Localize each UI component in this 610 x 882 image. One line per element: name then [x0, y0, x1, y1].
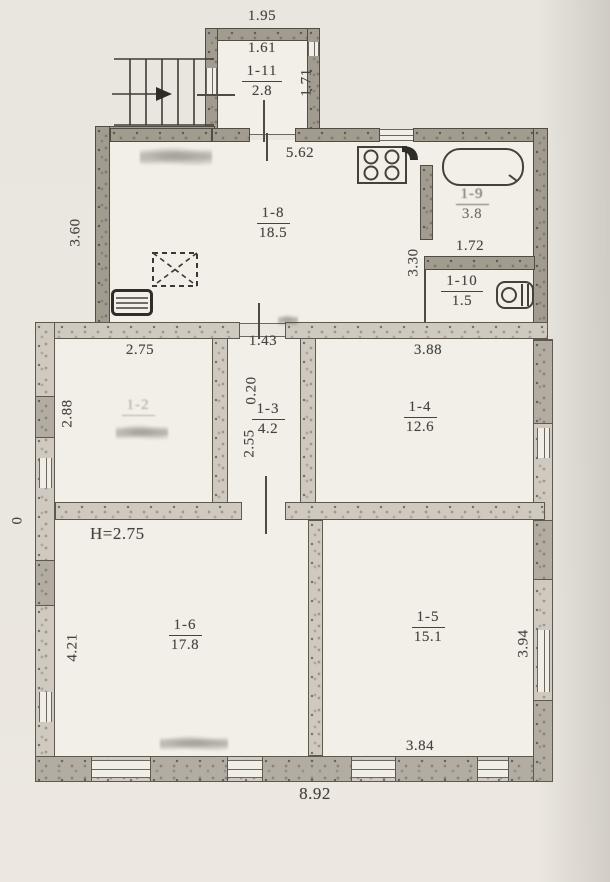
toilet-icon	[496, 280, 534, 310]
wall	[295, 128, 380, 142]
wall	[285, 502, 545, 520]
dim-bath-width: 1.72	[430, 238, 510, 255]
window	[537, 428, 550, 458]
room-area: 18.5	[233, 225, 313, 242]
room-id: 1-9	[456, 186, 489, 205]
room-id: 1-10	[441, 273, 483, 292]
wall	[413, 128, 548, 142]
room-area: 3.8	[442, 206, 502, 223]
dim-left-zero: 0	[10, 511, 27, 531]
wall-pier	[262, 756, 352, 782]
wall-pier	[35, 396, 55, 438]
wall	[35, 322, 240, 339]
floor-plan-page: 1.95 1.61 1.71 5.62 3.60 3.30 1.72 2.75 …	[0, 0, 610, 882]
dim-room14-width: 3.88	[388, 342, 468, 359]
dim-kitchen-width: 5.62	[260, 145, 340, 162]
room-id: 1-11	[242, 63, 283, 82]
window	[537, 630, 550, 692]
floor-hatch-icon	[151, 251, 199, 288]
ink-smudge	[140, 146, 212, 166]
ink-smudge	[116, 424, 168, 440]
wall-pier	[150, 756, 228, 782]
wall	[55, 502, 242, 520]
wall	[424, 256, 535, 270]
room-area: 15.1	[388, 629, 468, 646]
room-id: 1-5	[412, 609, 445, 628]
dim-tambour-outer-width: 1.95	[212, 8, 312, 25]
door-line	[263, 100, 265, 142]
window	[39, 458, 52, 488]
room-area: 12.6	[380, 419, 460, 436]
dim-upper-mid-height: 3.30	[406, 243, 423, 283]
wall	[420, 165, 433, 240]
window	[39, 692, 52, 722]
room-label-1-5: 1-5 15.1	[388, 608, 468, 646]
dim-tambour-inner-width: 1.61	[212, 40, 312, 57]
room-area: 17.8	[145, 637, 225, 654]
room-id: 1-4	[404, 399, 437, 418]
wall	[285, 322, 548, 339]
room-label-1-4: 1-4 12.6	[380, 398, 460, 436]
room-label-1-8: 1-8 18.5	[233, 204, 313, 242]
room-area: 4.2	[238, 421, 298, 438]
wall-pier	[35, 560, 55, 606]
radiator-icon	[111, 289, 153, 316]
height-note: H=2.75	[90, 524, 210, 544]
wall-pier	[533, 520, 553, 580]
bathtub-icon	[441, 147, 525, 187]
dim-tambour-depth: 1.71	[299, 63, 316, 103]
tick-line	[197, 94, 235, 96]
dim-room15-width: 3.84	[380, 738, 460, 755]
room-label-1-11: 1-11 2.8	[232, 62, 292, 100]
wall-pier	[533, 340, 553, 424]
wall	[533, 128, 548, 326]
room-area: 1.5	[427, 293, 497, 310]
ink-smudge	[278, 314, 298, 326]
partition-line	[424, 270, 426, 322]
room-label-1-2: 1-2	[108, 396, 168, 417]
room-label-1-10: 1-10 1.5	[427, 272, 497, 310]
room-label-1-6: 1-6 17.8	[145, 616, 225, 654]
wall-pier	[35, 756, 92, 782]
door-swing-icon	[398, 142, 422, 164]
wall	[308, 520, 323, 756]
room-label-1-3: 1-3 4.2	[238, 400, 298, 438]
window	[478, 760, 508, 778]
window	[380, 129, 413, 141]
room-id: 1-2	[122, 397, 155, 416]
room-label-1-9: 1-9 3.8	[442, 185, 502, 223]
dim-room12-width: 2.75	[100, 342, 180, 359]
dim-hall-width: 1.43	[223, 333, 303, 350]
wall	[300, 338, 316, 505]
window	[92, 760, 150, 778]
room-id: 1-8	[257, 205, 290, 224]
room-area: 2.8	[232, 83, 292, 100]
wall	[212, 338, 228, 505]
wall	[95, 126, 110, 326]
room-id: 1-3	[252, 401, 285, 420]
window	[352, 760, 395, 778]
wall	[110, 128, 212, 142]
window	[228, 760, 262, 778]
wall-pier	[395, 756, 478, 782]
wall	[212, 128, 250, 142]
ink-smudge	[160, 735, 228, 751]
dim-upper-left-height: 3.60	[68, 213, 85, 253]
staircase-icon	[112, 57, 216, 127]
dim-room16-height: 4.21	[65, 628, 82, 668]
dim-total-width: 8.92	[275, 784, 355, 804]
wall-pier	[533, 700, 553, 782]
room-id: 1-6	[169, 617, 202, 636]
door-line	[265, 476, 267, 534]
dim-room15-height: 3.94	[516, 624, 533, 664]
dim-room12-height: 2.88	[60, 394, 77, 434]
